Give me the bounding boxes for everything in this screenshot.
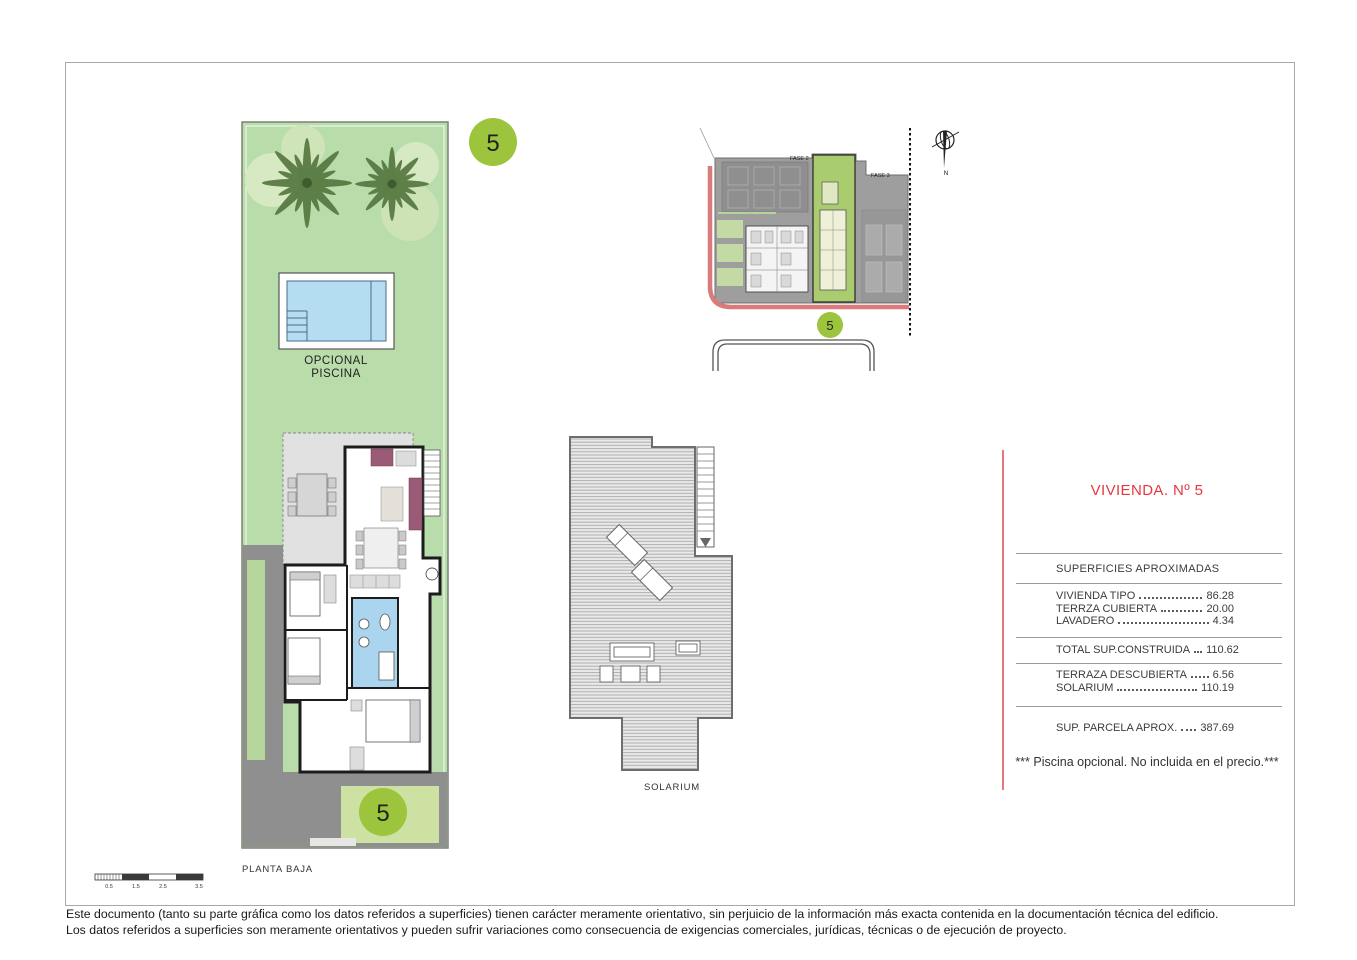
pool-note: *** Piscina opcional. No incluida en el … bbox=[1006, 755, 1288, 769]
road-curb bbox=[713, 340, 874, 371]
north-label: N bbox=[944, 170, 949, 177]
dot-leader bbox=[1139, 597, 1202, 599]
table-row: VIVIENDA TIPO86.28 bbox=[1056, 590, 1234, 603]
plan-sheet: OPCIONAL PISCINA bbox=[0, 0, 1357, 960]
svg-text:5: 5 bbox=[486, 130, 499, 157]
surface-table: SUPERFICIES APROXIMADAS VIVIENDA TIPO86.… bbox=[1016, 553, 1282, 734]
washer-icon bbox=[426, 568, 438, 580]
dot-leader bbox=[1181, 729, 1196, 731]
scale-bar: 0.5 1.5 2.5 3.5 bbox=[95, 874, 203, 890]
dot-leader bbox=[1117, 689, 1197, 691]
svg-text:5: 5 bbox=[826, 318, 833, 333]
dot-leader bbox=[1191, 676, 1209, 678]
optional-pool bbox=[279, 273, 394, 349]
panel-title: VIVIENDA. Nº 5 bbox=[1010, 482, 1284, 499]
fase3-label: FASE 3 bbox=[871, 173, 890, 179]
plans-drawing: OPCIONAL PISCINA bbox=[0, 0, 1357, 960]
floor-label: PLANTA BAJA bbox=[242, 864, 313, 875]
table-row: SUP. PARCELA APROX.387.69 bbox=[1056, 722, 1234, 735]
solarium-stair bbox=[697, 447, 714, 547]
pool-label-line2: PISCINA bbox=[311, 368, 361, 380]
table-group: TOTAL SUP.CONSTRUIDA110.62 bbox=[1016, 638, 1282, 664]
garden-plots bbox=[717, 220, 743, 286]
plot-number-badge: 5 bbox=[469, 118, 517, 166]
table-group: TERRAZA DESCUBIERTA6.56 SOLARIUM110.19 bbox=[1016, 664, 1282, 705]
scale-tick: 1.5 bbox=[132, 884, 140, 890]
plot-number-badge: 5 bbox=[359, 788, 407, 836]
dot-leader bbox=[1161, 610, 1202, 612]
disclaimer-footer: Este documento (tanto su parte gráfica c… bbox=[66, 907, 1306, 938]
panel-accent-rule bbox=[1002, 450, 1004, 790]
exterior-stair bbox=[424, 450, 440, 516]
fase2-label: FASE 2 bbox=[790, 156, 809, 162]
table-row: SOLARIUM110.19 bbox=[1056, 682, 1234, 695]
disclaimer-line: Los datos referidos a superficies son me… bbox=[66, 923, 1306, 939]
plot-number-badge: 5 bbox=[817, 312, 843, 338]
ground-floor-plan: OPCIONAL PISCINA bbox=[242, 122, 448, 848]
table-row: LAVADERO4.34 bbox=[1056, 615, 1234, 628]
solarium-plan: SOLARIUM bbox=[570, 437, 732, 793]
dot-leader bbox=[1194, 651, 1202, 653]
table-row: TERRZA CUBIERTA20.00 bbox=[1056, 603, 1234, 616]
table-row: TOTAL SUP.CONSTRUIDA110.62 bbox=[1056, 644, 1234, 657]
solarium-label: SOLARIUM bbox=[644, 782, 700, 793]
twin-villa-footprint bbox=[746, 226, 808, 292]
site-plan: FASE 2 FASE 3 5 N bbox=[700, 128, 959, 371]
north-compass-icon: N bbox=[932, 130, 959, 177]
disclaimer-line: Este documento (tanto su parte gráfica c… bbox=[66, 907, 1306, 923]
scale-tick: 3.5 bbox=[195, 884, 203, 890]
neighbor-buildings bbox=[862, 210, 906, 302]
table-row: TERRAZA DESCUBIERTA6.56 bbox=[1056, 669, 1234, 682]
scale-tick: 0.5 bbox=[105, 884, 113, 890]
table-group: SUP. PARCELA APROX.387.69 bbox=[1016, 707, 1282, 735]
bathroom bbox=[352, 598, 398, 688]
scale-tick: 2.5 bbox=[159, 884, 167, 890]
dot-leader bbox=[1118, 622, 1208, 624]
svg-text:5: 5 bbox=[376, 800, 389, 827]
table-header: SUPERFICIES APROXIMADAS bbox=[1016, 554, 1282, 583]
pool-label-line1: OPCIONAL bbox=[304, 355, 368, 367]
plot-building-footprint bbox=[820, 210, 846, 290]
table-group: VIVIENDA TIPO86.28 TERRZA CUBIERTA20.00 … bbox=[1016, 584, 1282, 637]
